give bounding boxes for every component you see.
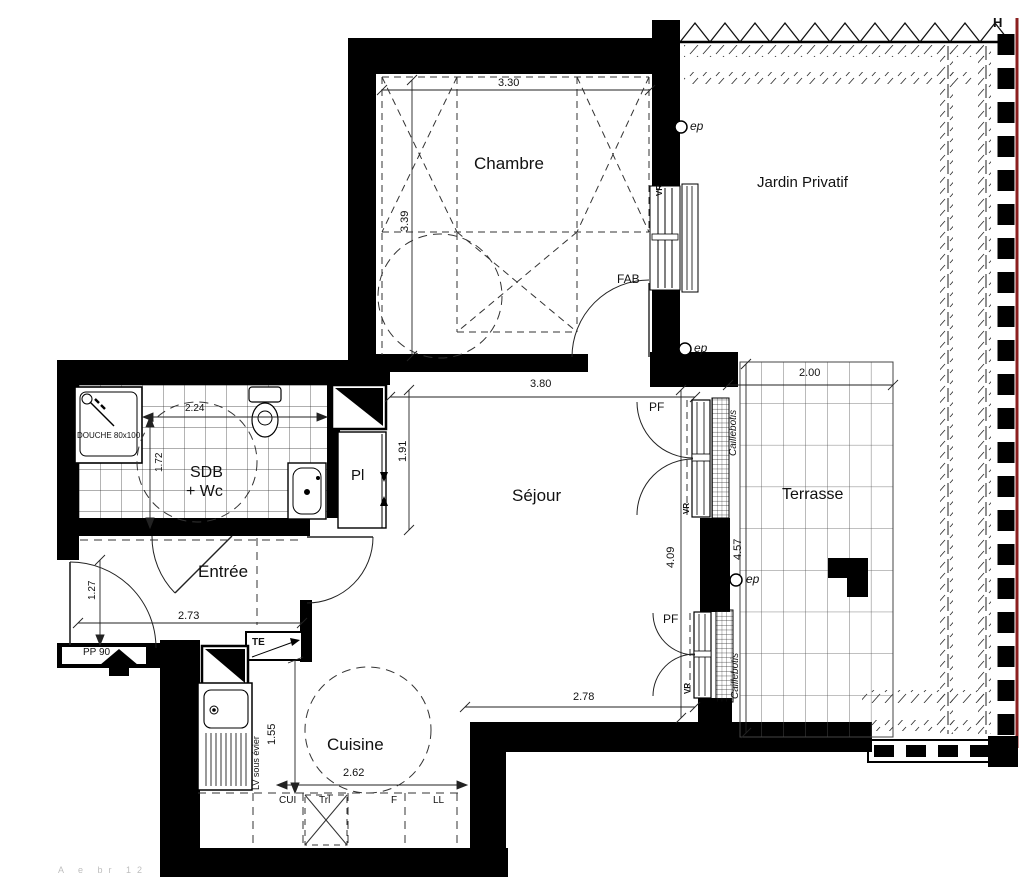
dim-cuisine-height: 1.55 (267, 724, 278, 745)
terrasse-area (723, 359, 898, 738)
sejour-label: Séjour (512, 487, 561, 504)
floor-plan-drawing (0, 0, 1022, 891)
chambre-room (377, 75, 698, 361)
cuisine-label: Cuisine (327, 736, 384, 753)
te-label: TE (252, 638, 265, 648)
vr-label-chambre: VR (656, 185, 664, 196)
chambre-door (572, 280, 649, 357)
dim-entree-width: 2.73 (178, 611, 199, 622)
faint-margin-text: A e br 12 (58, 866, 148, 875)
dim-chambre-width: 3.30 (498, 78, 519, 89)
dim-sdb-width: 2.24 (185, 404, 204, 414)
douche-label: DOUCHE 80x100 (77, 432, 140, 440)
jardin-label: Jardin Privatif (757, 175, 848, 190)
dim-cuisine-width: 2.62 (343, 768, 364, 779)
sejour-door (307, 537, 373, 603)
ep-label-3: ep (746, 573, 759, 585)
tri-label: Trl (319, 796, 330, 806)
pf1-french-window (637, 398, 729, 518)
dim-sejour-bottom: 2.78 (573, 692, 594, 703)
fence-zigzag (680, 23, 1010, 42)
placard-label: Pl (351, 468, 364, 483)
sdb-label-line2: + Wc (186, 484, 223, 500)
sejour-room (385, 385, 733, 723)
frigo-label: F (391, 796, 397, 806)
fab-label: FAB (617, 273, 640, 285)
dim-chambre-height: 3.39 (400, 211, 411, 232)
shower (75, 387, 142, 463)
vr-label-pf1: VR (683, 503, 691, 514)
entrance-door (70, 562, 156, 648)
terrasse-label: Terrasse (782, 487, 843, 503)
dim-sdb-height: 1.72 (155, 453, 165, 472)
chambre-label: Chambre (474, 155, 544, 172)
duct-shaft (332, 385, 386, 429)
dim-sejour-right: 4.09 (666, 547, 677, 568)
ep-label-1: ep (690, 120, 703, 132)
dim-terrasse-height: 4.57 (733, 539, 744, 560)
dim-sejour-top: 3.80 (530, 379, 551, 390)
dim-entree-height: 1.27 (88, 581, 98, 600)
kitchen-duct-shaft (202, 646, 248, 686)
caillebotis-strip-1 (712, 398, 729, 518)
washbasin (288, 463, 326, 519)
entree-label: Entrée (198, 563, 248, 580)
chambre-window (650, 184, 698, 292)
lv-label: LV sous évier (252, 736, 261, 790)
vr-label-pf2: VR (684, 683, 692, 694)
floor-plan: Chambre 3.30 3.39 Jardin Privatif H ep e… (0, 0, 1022, 891)
ep-label-2: ep (694, 342, 707, 354)
toilet (249, 387, 281, 437)
ll-label: LL (433, 796, 444, 806)
pf-label-2: PF (663, 613, 678, 625)
pp90-label: PP 90 (83, 648, 110, 658)
dim-sejour-left: 1.91 (398, 441, 409, 462)
caillebotis-label-2: Caillebotis (731, 653, 741, 699)
caillebotis-label-1: Caillebotis (729, 410, 739, 456)
sdb-label-line1: SDB (190, 465, 223, 481)
cui-label: CUI (279, 796, 296, 806)
wardrobe-outline (378, 77, 649, 358)
dim-terrasse-width: 2.00 (799, 368, 820, 379)
pf-label-1: PF (649, 401, 664, 413)
kitchen-sink (198, 683, 252, 790)
h-marker: H (993, 16, 1002, 29)
